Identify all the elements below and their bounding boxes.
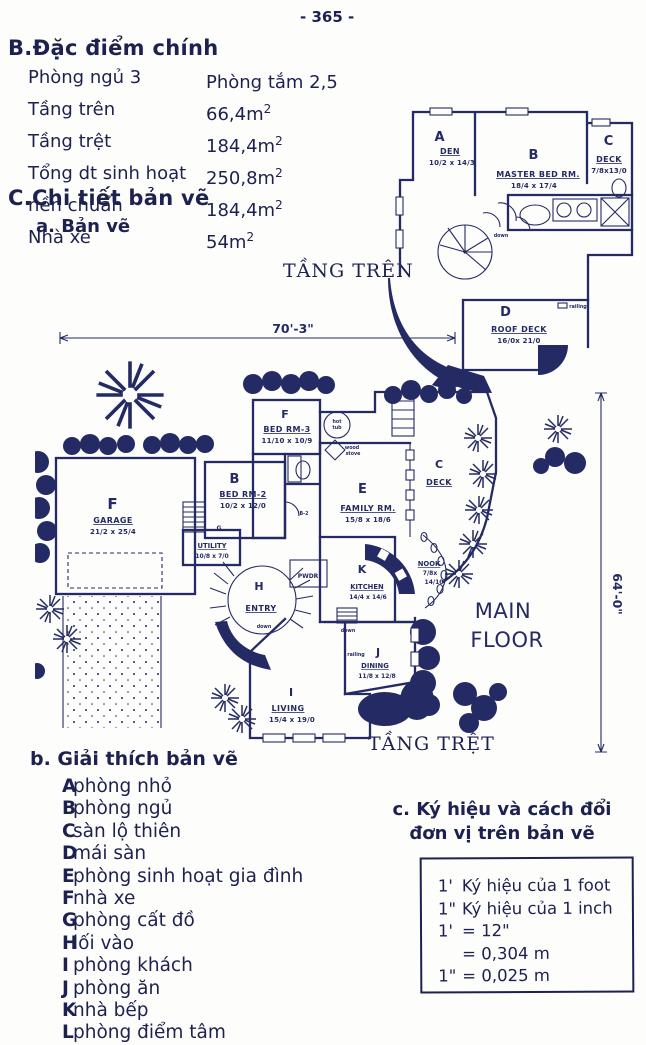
wood-stove-label: wood [345,445,360,451]
room-dims-deck-upper: 7/8x13/0 [591,167,627,175]
room-name-deck-upper: DECK [596,155,622,164]
room-name-entry: ENTRY [245,604,276,613]
list-item: Gphòng cất đồ [30,910,303,932]
down-note-upper: down [494,233,509,239]
room-letter-den: A [434,130,445,145]
room-letter-deck-main: C [435,458,443,471]
spec-value: 184,4m2 [206,192,283,224]
hot-tub-icon [324,412,350,438]
down-note-entry: down [257,624,272,630]
room-letter-deck-upper: C [604,134,615,149]
spec-label: Phòng ngủ 3 [28,64,206,96]
room-letter-utility: G [217,525,222,532]
room-dims-garage: 21/2 x 25/4 [90,528,136,536]
list-item: Aphòng nhỏ [30,776,303,798]
spec-label: Tầng trên [28,96,206,128]
room-name-master: MASTER BED RM. [496,170,580,179]
room-dims-nook-a: 7/8x [423,570,438,577]
room-name-garage: GARAGE [93,516,133,525]
table-row: Tầng trệt184,4m2 [28,128,388,160]
room-name-utility: UTILITY [197,542,226,550]
railing-note: railing [569,304,587,310]
room-name-powder: PWDR [298,573,319,580]
room-letter-roofdeck: D [500,305,512,320]
conversion-line: 1"Ký hiệu của 1 inch [438,897,632,921]
height-dim-label: 64'-0" [610,573,625,615]
scanned-book-page: { "page": { "number": "- 365 -" }, "sect… [0,0,646,1024]
driveway [63,596,161,728]
room-letter-family: E [358,482,368,497]
spec-value: 250,8m2 [206,160,283,192]
spec-value: 66,4m2 [206,96,271,128]
list-item: Knhà bếp [30,1000,303,1022]
conversion-line: 1'Ký hiệu của 1 foot [438,874,632,898]
list-item: Hlối vào [30,933,303,955]
list-item: Csàn lộ thiên [30,821,303,843]
room-name-dining: DINING [361,662,389,670]
room-dims-living: 15/4 x 19/0 [269,716,315,724]
room-letter-master: B [529,148,540,163]
conversion-line: = 0,304 m [438,942,632,966]
section-c2-title-line1: c. Ký hiệu và cách đổi [372,798,632,822]
list-item: Iphòng khách [30,955,303,977]
room-dims-utility: 10/8 x 7/0 [195,553,228,560]
room-name-living: LIVING [272,704,305,713]
spec-value: 54m2 [206,224,254,256]
room-dims-kitchen: 14/4 x 14/6 [349,594,386,601]
room-dims-bed3: 11/10 x 10/9 [262,437,313,445]
room-dims-den: 10/2 x 14/3 [429,159,475,167]
room-dims-master: 18/4 x 17/4 [511,182,557,190]
deck-railing [406,443,414,537]
spiral-stair-icon [438,203,530,279]
plan-title-line1: MAIN [475,599,531,623]
table-row: Phòng ngủ 3Phòng tắm 2,5 [28,64,388,96]
width-dim-label: 70'-3" [272,322,314,336]
room-letter-dining: J [375,646,380,659]
room-dims-bed2: 10/2 x 12/0 [220,502,266,510]
room-name-nook: NOOK [418,560,441,568]
spec-label: Tầng trệt [28,128,206,160]
room-name-den: DEN [440,147,460,156]
plan-title-line2: FLOOR [470,628,543,652]
hot-tub-label: hot [332,419,342,425]
list-item: Ephòng sinh hoạt gia đình [30,866,303,888]
room-name-bed2: BED RM-2 [219,490,266,499]
section-b-title: B.Đặc điểm chính [8,36,218,60]
section-c2-title-line2: đơn vị trên bản vẽ [372,822,632,846]
garage-door-setback [68,553,162,588]
room-name-deck-main: DECK [426,478,452,487]
spec-value: Phòng tắm 2,5 [206,64,338,96]
legend-title: b. Giải thích bản vẽ [30,748,303,770]
room-name-bed3: BED RM-3 [263,425,310,434]
room-letter-entry: H [254,580,263,593]
room-name-family: FAMILY RM. [340,504,395,513]
room-letter-bed3: F [281,408,289,421]
page-number: - 365 - [300,8,354,26]
main-floor-plan: 70'-3" 64'-0" [35,322,625,767]
list-item: Dmái sàn [30,843,303,865]
room-name-kitchen: KITCHEN [350,583,384,591]
dining-walls [325,618,415,694]
table-row: Tầng trên66,4m2 [28,96,388,128]
room-dims-family: 15/8 x 18/6 [345,516,391,524]
bath2-label: B-2 [300,511,309,517]
list-item: Bphòng ngủ [30,798,303,820]
section-c2: c. Ký hiệu và cách đổi đơn vị trên bản v… [372,798,632,846]
bath2-fixtures-icon [285,456,310,516]
room-letter-garage: F [107,495,118,513]
legend: b. Giải thích bản vẽ Aphòng nhỏ Bphòng n… [30,748,303,1045]
conversion-line: 1"= 0,025 m [438,964,632,988]
down-note-kitchen: down [341,628,356,634]
height-dimension: 64'-0" [595,393,625,752]
spec-value: 184,4m2 [206,128,283,160]
list-item: Jphòng ăn [30,978,303,1000]
railing-note-main: railing [347,652,365,658]
room-letter-living: I [289,686,293,699]
section-a-subtitle: a. Bản vẽ [36,216,130,237]
porch-shrub-icon [215,621,434,726]
list-item: Lphòng điểm tâm [30,1022,303,1044]
room-letter-bed2: B [230,472,241,487]
hot-tub-label2: tub [332,425,342,431]
conversion-line: 1'= 12" [438,919,632,943]
wood-stove-label2: stove [346,451,362,457]
width-dimension: 70'-3" [60,322,455,344]
room-dims-dining: 11/8 x 12/8 [358,673,395,680]
conversion-box: 1'Ký hiệu của 1 foot 1"Ký hiệu của 1 inc… [420,856,635,993]
room-dims-nook-b: 14/10 [425,579,444,586]
room-letter-kitchen: K [358,563,367,576]
garage-walls [56,458,195,594]
list-item: Fnhà xe [30,888,303,910]
section-c-title: C.Chi tiết bản vẽ [8,186,210,210]
